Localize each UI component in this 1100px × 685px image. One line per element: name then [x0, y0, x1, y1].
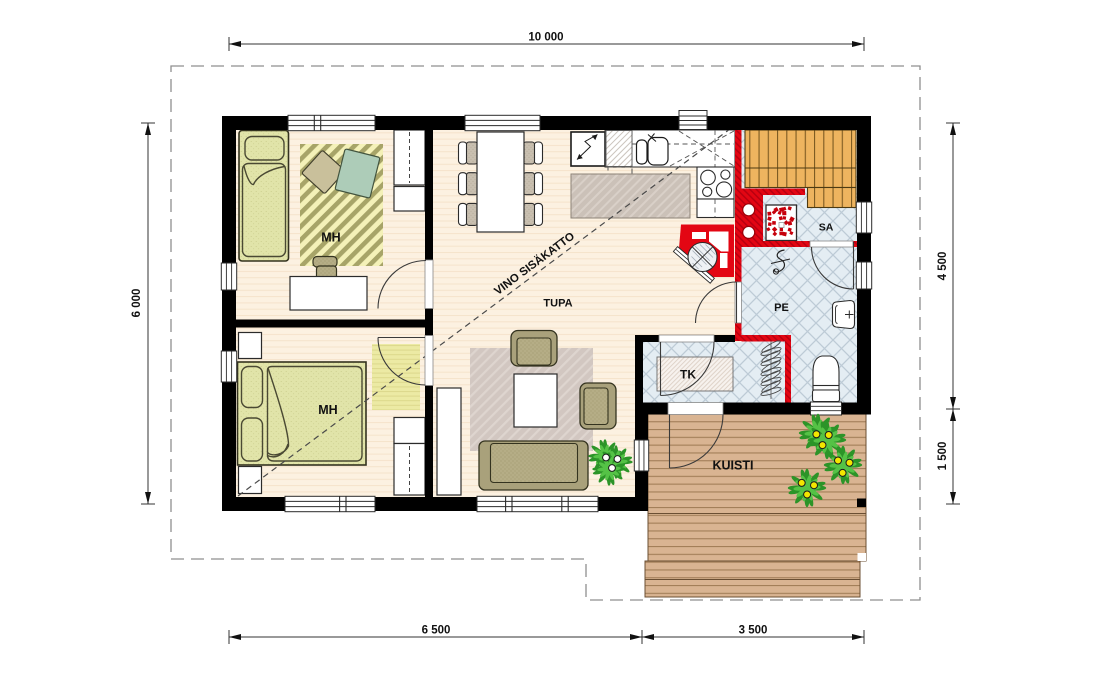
svg-text:4 500: 4 500	[937, 252, 949, 281]
svg-text:TUPA: TUPA	[543, 298, 572, 310]
svg-text:PE: PE	[774, 302, 789, 314]
svg-text:MH: MH	[318, 403, 337, 417]
svg-text:1 500: 1 500	[937, 442, 949, 471]
svg-text:6 500: 6 500	[422, 625, 451, 637]
svg-text:3 500: 3 500	[739, 625, 768, 637]
svg-text:10 000: 10 000	[528, 32, 563, 44]
svg-text:KUISTI: KUISTI	[713, 459, 754, 473]
svg-text:TK: TK	[680, 368, 696, 382]
svg-text:MH: MH	[321, 231, 340, 245]
svg-text:6 000: 6 000	[131, 289, 143, 318]
svg-text:SA: SA	[819, 222, 834, 234]
